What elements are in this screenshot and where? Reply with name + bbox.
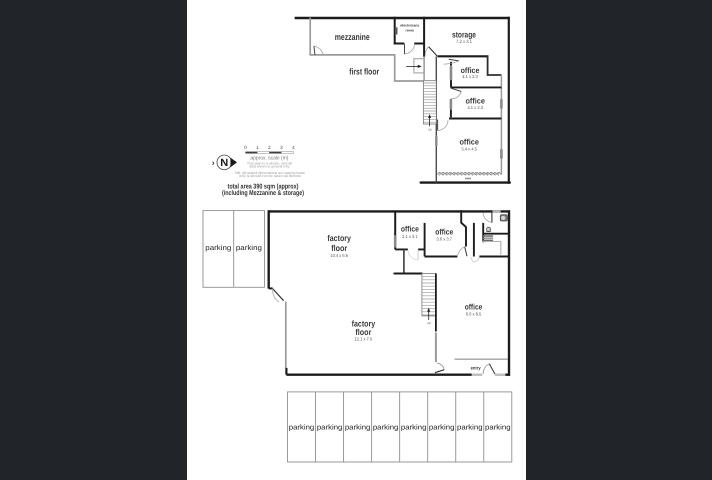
svg-text:2: 2	[268, 145, 271, 150]
svg-text:3: 3	[280, 145, 283, 150]
svg-text:4.1 x 2.3: 4.1 x 2.3	[467, 105, 483, 110]
svg-text:first floor: first floor	[349, 66, 379, 76]
svg-text:12.1 x 7.0: 12.1 x 7.0	[355, 337, 373, 342]
svg-text:0: 0	[244, 145, 247, 150]
svg-text:up: up	[427, 321, 431, 325]
svg-text:parking: parking	[236, 243, 262, 252]
svg-text:parking: parking	[485, 422, 511, 431]
svg-text:floor: floor	[331, 243, 348, 253]
svg-text:4.1 x 2.3: 4.1 x 2.3	[462, 74, 478, 79]
svg-text:parking: parking	[289, 422, 315, 431]
svg-text:factory: factory	[327, 233, 351, 243]
svg-text:parking: parking	[457, 422, 483, 431]
svg-text:office: office	[435, 227, 453, 236]
svg-text:7.2 x 3.1: 7.2 x 3.1	[456, 39, 472, 44]
svg-text:1: 1	[256, 145, 259, 150]
svg-text:N: N	[220, 157, 228, 169]
svg-text:parking: parking	[205, 243, 231, 252]
svg-text:parking: parking	[317, 422, 343, 431]
svg-text:mezzanine: mezzanine	[335, 32, 370, 42]
svg-text:parking: parking	[373, 422, 399, 431]
svg-text:10.4 x 6.6: 10.4 x 6.6	[330, 253, 348, 258]
svg-text:5.4 x 4.5: 5.4 x 4.5	[461, 146, 477, 151]
svg-text:(including Mezzanine & storage: (including Mezzanine & storage)	[222, 189, 304, 197]
svg-text:parking: parking	[401, 422, 427, 431]
svg-text:storage: storage	[452, 29, 476, 39]
svg-text:office: office	[459, 138, 479, 147]
svg-text:4: 4	[292, 145, 295, 150]
svg-text:entry: entry	[471, 365, 481, 371]
svg-text:2.1 x 3.1: 2.1 x 3.1	[402, 234, 418, 239]
svg-text:office: office	[401, 224, 419, 233]
svg-text:up: up	[428, 127, 432, 131]
svg-text:room: room	[406, 28, 415, 32]
svg-text:parking: parking	[345, 422, 371, 431]
svg-text:data shown is general only: data shown is general only	[249, 164, 289, 168]
svg-text:office: office	[465, 303, 483, 312]
svg-text:›: ›	[212, 157, 215, 167]
svg-text:parking: parking	[429, 422, 455, 431]
svg-text:6.0 x 8.5: 6.0 x 8.5	[466, 312, 482, 317]
svg-text:3.6 x 3.7: 3.6 x 3.7	[437, 237, 453, 242]
svg-text:electricians: electricians	[400, 24, 419, 28]
svg-text:only & should not be taken as: only & should not be taken as definite	[239, 174, 301, 178]
